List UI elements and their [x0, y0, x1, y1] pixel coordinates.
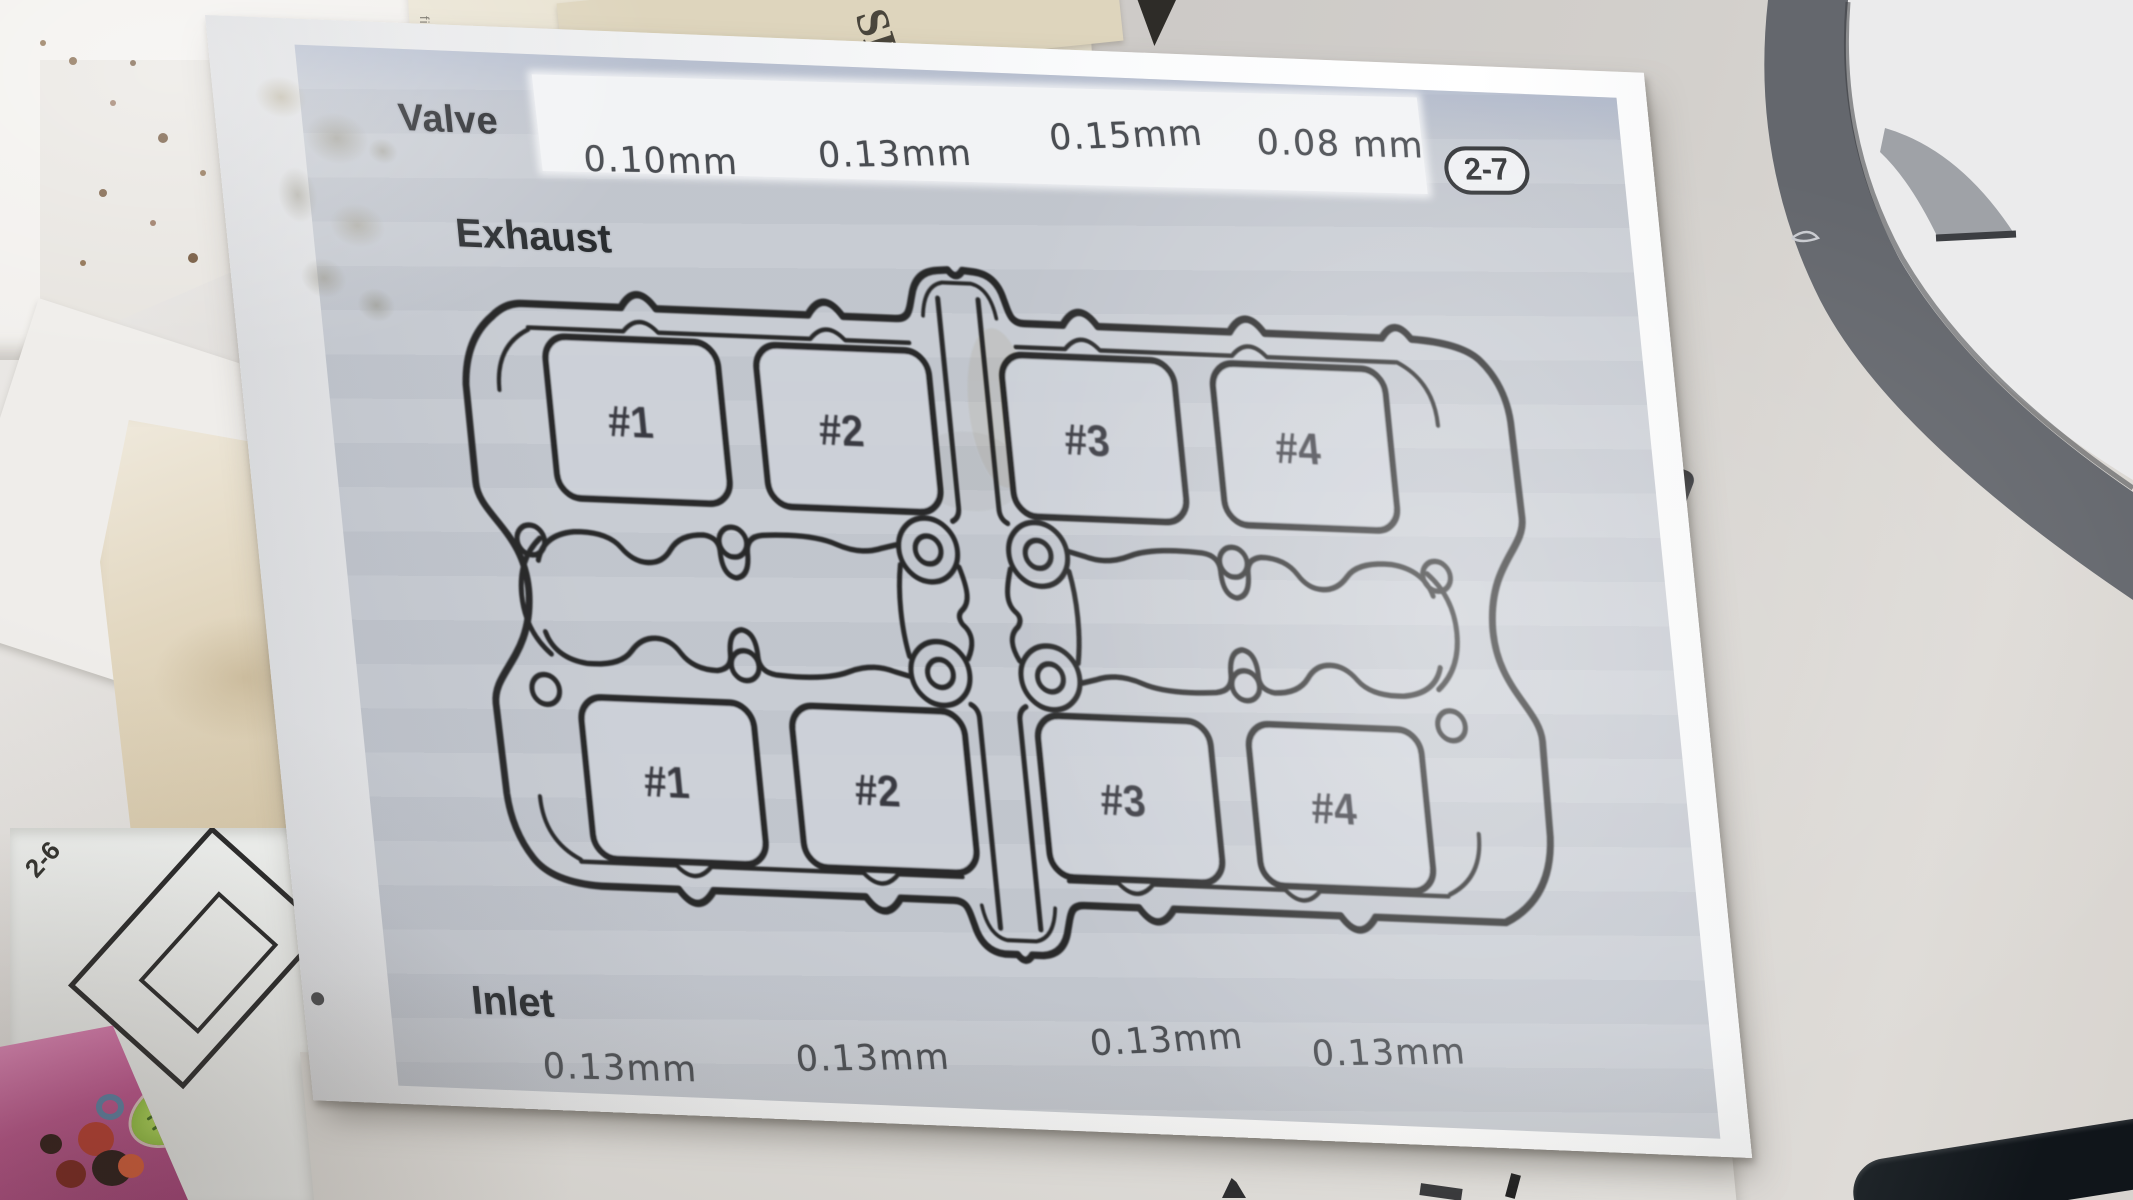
- berry: [56, 1160, 86, 1188]
- manual-figure-inner: [139, 891, 279, 1034]
- document-sheet: Valve 0.10mm 0.13mm 0.15mm 0.08 mm 2-7 E…: [205, 15, 1752, 1158]
- photo-valve-clearance-sheet: SE fication 2-6: [0, 0, 2133, 1200]
- berry-dark: [40, 1134, 62, 1154]
- side-object: [1680, 0, 2133, 660]
- dark-paper-wedge: [1128, 0, 1176, 46]
- side-object-slit: [1936, 234, 2016, 238]
- sheet-glare: [205, 15, 1752, 1158]
- crumbs: [40, 40, 46, 46]
- berry: [118, 1154, 144, 1178]
- manual-page-label: 2-6: [19, 835, 67, 884]
- phone-corner: [1848, 1117, 2133, 1200]
- package-blue-ring: [96, 1094, 124, 1120]
